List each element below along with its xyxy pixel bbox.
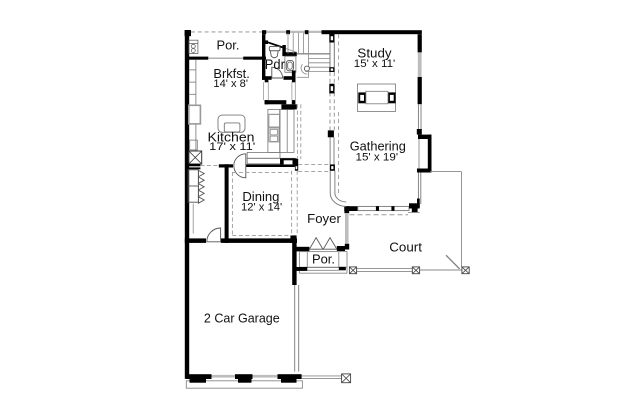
svg-text:Por.: Por. xyxy=(217,39,240,53)
svg-text:Court: Court xyxy=(389,240,422,255)
svg-text:12' x 14': 12' x 14' xyxy=(241,202,282,214)
svg-text:2 Car Garage: 2 Car Garage xyxy=(204,310,280,325)
svg-text:Por.: Por. xyxy=(312,253,335,267)
svg-text:14' x 8': 14' x 8' xyxy=(213,78,248,90)
svg-text:15' x 11': 15' x 11' xyxy=(354,58,395,70)
svg-text:Foyer: Foyer xyxy=(307,211,341,226)
svg-text:17' x 11': 17' x 11' xyxy=(209,141,255,153)
svg-text:15' x 19': 15' x 19' xyxy=(356,152,399,164)
svg-text:Pdr: Pdr xyxy=(265,57,286,72)
